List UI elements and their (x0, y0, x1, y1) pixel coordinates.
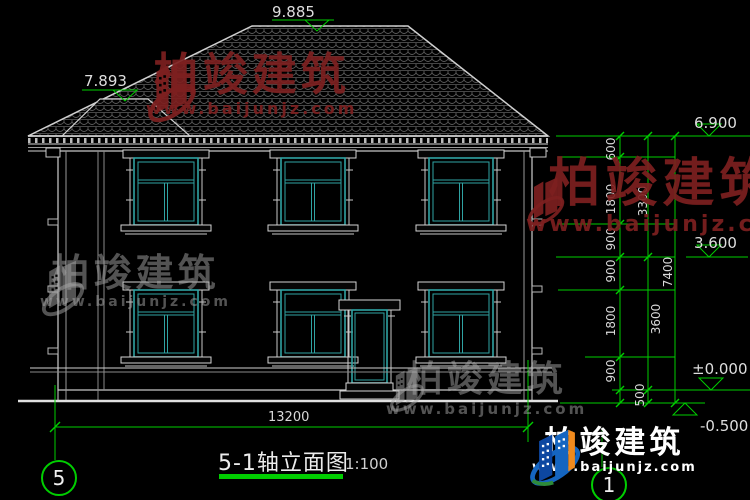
dim-900c: 900 (604, 348, 618, 394)
level-outdoor: -0.500 (700, 417, 748, 435)
brand-logo-color-icon (528, 426, 586, 492)
axis-5-label: 5 (53, 466, 66, 490)
level-left-ridge: 7.893 (84, 72, 127, 90)
dim-1800b: 1800 (604, 298, 618, 344)
title-underline (219, 474, 343, 479)
dim-900b: 900 (604, 248, 618, 294)
drawing-scale: 1:100 (345, 455, 388, 473)
level-ground: ±0.000 (692, 360, 748, 378)
cad-elevation-drawing: 9.885 7.893 6.900 3.600 ±0.000 -0.500 60… (0, 0, 750, 500)
dim-500: 500 (633, 372, 647, 418)
level-eave: 6.900 (694, 114, 737, 132)
level-floor2: 3.600 (694, 234, 737, 252)
axis-bubble-5: 5 (41, 460, 77, 496)
axis-1-label: 1 (603, 473, 616, 497)
level-ridge: 9.885 (272, 3, 315, 21)
dim-13200: 13200 (268, 410, 309, 425)
brand-footer: 柏竣建筑 www.baijunjz.com (528, 426, 697, 475)
drawing-title: 5-1轴立面图 (218, 445, 349, 477)
dim-3300: 3300 (636, 178, 650, 224)
dim-7400: 7400 (661, 249, 675, 295)
dim-3600: 3600 (649, 296, 663, 342)
dim-600: 600 (604, 126, 618, 172)
